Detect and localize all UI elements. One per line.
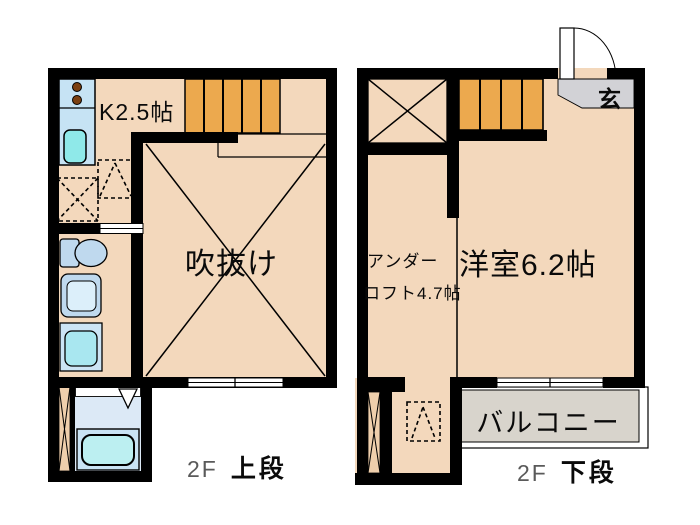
stove-burner-icon	[73, 96, 82, 105]
pipe-shaft	[59, 387, 70, 471]
wash-basin	[61, 274, 101, 317]
washing-machine	[60, 323, 102, 371]
window	[497, 378, 603, 387]
stairs-lower	[459, 79, 543, 135]
bathroom	[75, 387, 141, 471]
void-box	[368, 79, 447, 143]
kitchen-counter	[59, 79, 95, 165]
sliding-door	[100, 224, 143, 234]
entrance-label: 玄	[598, 80, 622, 114]
balcony-label: バルコニー	[458, 401, 639, 440]
right-plan-caption: 2F 下段	[517, 453, 617, 489]
toilet	[60, 239, 107, 267]
western-room-label: 洋室6.2帖	[459, 240, 597, 284]
kitchen-label: K2.5帖	[99, 93, 174, 127]
right-caption-level: 下段	[561, 453, 617, 489]
pipe-shaft	[368, 392, 380, 473]
kitchen-sink	[64, 130, 86, 163]
left-caption-floor: 2F	[187, 456, 218, 483]
right-caption-floor: 2F	[517, 460, 548, 487]
left-plan-caption: 2F 上段	[187, 449, 287, 485]
floor-plan-image: K2.5帖 吹抜け 2F 上段 アンダー ロフト4.7帖 洋室6.2帖 玄 バル…	[0, 0, 700, 525]
under-loft-label-line2: ロフト4.7帖	[363, 279, 462, 304]
bathtub	[77, 429, 139, 470]
window	[188, 378, 283, 387]
under-loft-label-line1: アンダー	[367, 247, 438, 272]
void-label: 吹抜け	[185, 239, 278, 283]
left-caption-level: 上段	[231, 449, 287, 485]
stove-burner-icon	[73, 83, 82, 92]
